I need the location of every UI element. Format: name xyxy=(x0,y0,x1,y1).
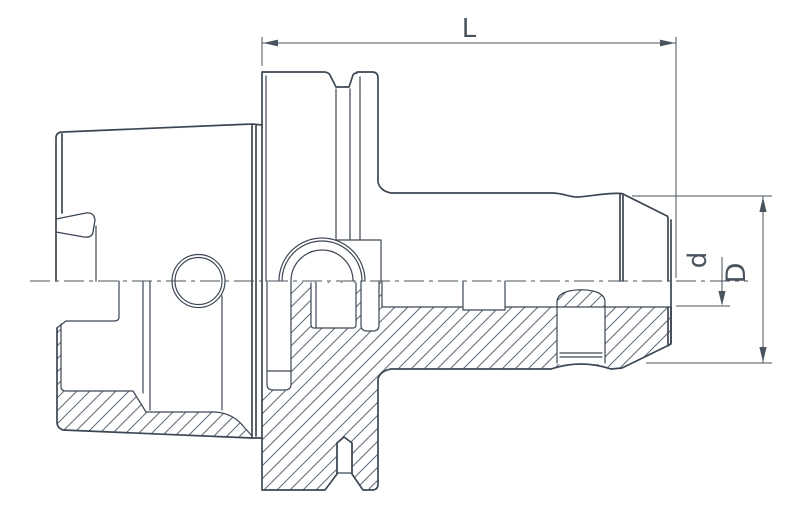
coolant-bore-arcs xyxy=(279,77,381,281)
dim-L-extension-lines xyxy=(262,37,676,278)
dim-D-arrow-bottom xyxy=(759,347,766,362)
dim-L-label: L xyxy=(462,14,477,44)
shank-cavity-edges xyxy=(57,76,266,436)
hatch-flange-body xyxy=(262,282,671,490)
technical-drawing-page: L d D xyxy=(0,0,812,517)
dim-d-label: d xyxy=(683,252,713,269)
hatch-shank-wall xyxy=(57,324,252,438)
drawing-canvas: L d D xyxy=(0,0,812,517)
dim-D-label: D xyxy=(721,263,752,284)
dim-L-arrow-right xyxy=(660,40,675,47)
dim-L-arrow-left xyxy=(263,40,278,47)
dim-d-arrow xyxy=(718,291,725,306)
balance-hole-edges xyxy=(337,437,352,474)
clamp-bore-edges xyxy=(382,281,671,310)
dim-D-arrow-top xyxy=(759,197,766,212)
drive-slot-tab xyxy=(56,213,95,237)
section-hatching xyxy=(57,282,671,490)
